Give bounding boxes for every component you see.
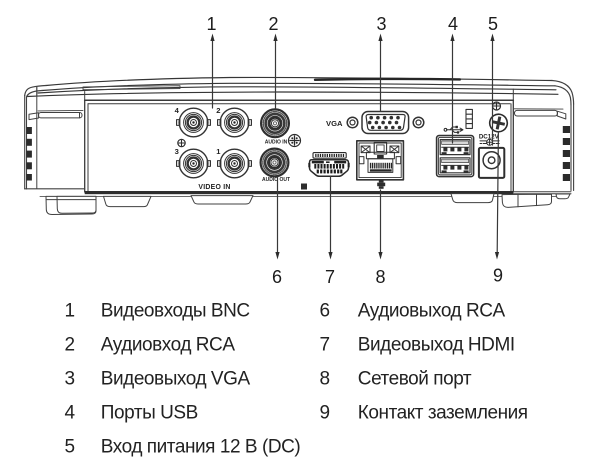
svg-text:Порты USB: Порты USB [101, 403, 198, 424]
svg-text:Сетевой порт: Сетевой порт [358, 369, 472, 390]
svg-text:Видеовыход VGA: Видеовыход VGA [101, 369, 251, 390]
svg-text:Вход питания 12 В (DC): Вход питания 12 В (DC) [101, 437, 301, 458]
svg-text:2: 2 [216, 106, 220, 115]
svg-text:9: 9 [320, 403, 330, 424]
svg-text:6: 6 [272, 267, 282, 287]
svg-text:1: 1 [216, 147, 221, 156]
svg-text:7: 7 [325, 267, 335, 287]
svg-text:4: 4 [448, 14, 458, 34]
svg-text:6: 6 [320, 301, 330, 322]
svg-text:8: 8 [375, 267, 385, 287]
svg-text:4: 4 [65, 403, 76, 424]
svg-text:3: 3 [65, 369, 75, 390]
svg-text:Аудиовход RCA: Аудиовход RCA [101, 335, 236, 356]
svg-text:Видеовходы BNC: Видеовходы BNC [101, 301, 250, 322]
svg-text:5: 5 [65, 437, 75, 458]
svg-text:8: 8 [320, 369, 330, 390]
svg-text:2: 2 [65, 335, 75, 356]
svg-text:4: 4 [175, 106, 180, 115]
svg-text:Аудиовыход RCA: Аудиовыход RCA [358, 301, 506, 322]
svg-text:Видеовыход HDMI: Видеовыход HDMI [358, 335, 515, 356]
svg-text:Контакт заземления: Контакт заземления [358, 403, 528, 424]
svg-text:1: 1 [65, 301, 75, 322]
svg-text:3: 3 [376, 14, 386, 34]
svg-text:VIDEO IN: VIDEO IN [198, 184, 230, 191]
svg-text:3: 3 [175, 147, 179, 156]
svg-text:AUDIO IN: AUDIO IN [265, 140, 288, 146]
svg-text:VGA: VGA [326, 119, 343, 128]
svg-text:9: 9 [493, 266, 503, 286]
svg-text:1: 1 [206, 14, 216, 34]
svg-text:7: 7 [320, 335, 330, 356]
svg-text:2: 2 [268, 14, 278, 34]
svg-text:5: 5 [488, 14, 498, 34]
svg-text:AUDIO OUT: AUDIO OUT [262, 177, 290, 183]
